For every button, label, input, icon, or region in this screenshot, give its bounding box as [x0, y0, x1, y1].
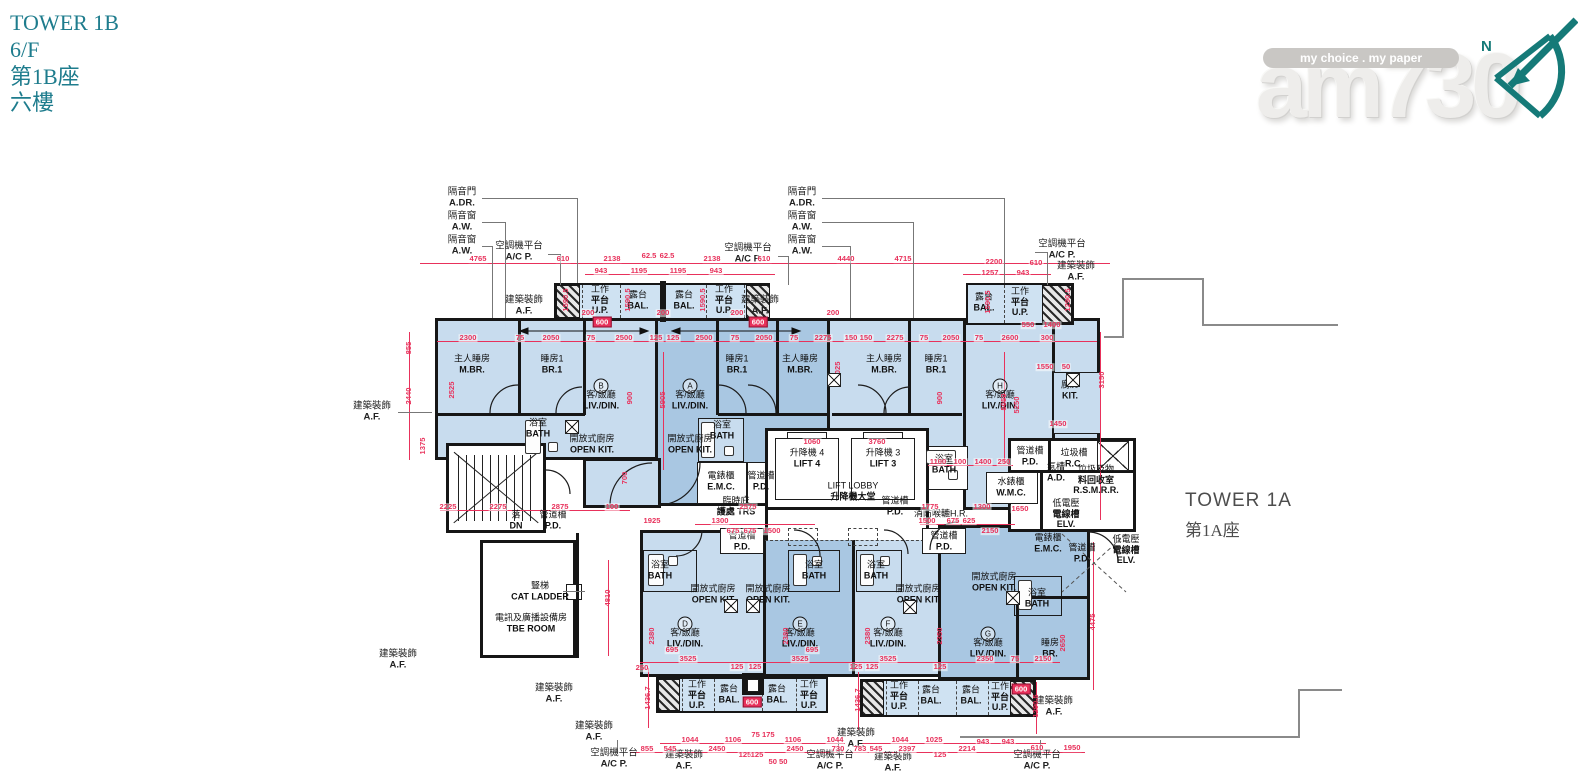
room-label: 露台BAL.: [961, 684, 982, 705]
dimension-label: 5050: [1000, 393, 1008, 412]
dimension-label: 75: [974, 334, 984, 342]
dimension-label: 1550: [1036, 363, 1055, 371]
dimension-label: 2138: [703, 255, 722, 263]
room-label: 工作平台U.P.: [991, 681, 1009, 713]
dimension-label: 75: [919, 334, 929, 342]
dimension-label: 100: [953, 458, 968, 466]
dimension-label: 2380: [782, 627, 790, 646]
dimension-label: 1375: [419, 437, 427, 456]
dimension-label: 1400: [1043, 321, 1062, 329]
callout-label: 建築裝飾A.F.: [505, 295, 543, 318]
dimension-label: 1590.5: [699, 287, 707, 312]
dimension-label: 2380: [864, 627, 872, 646]
dimension-label: 2225: [439, 503, 458, 511]
dimension-label: 75: [730, 334, 740, 342]
dimension-label: 1100: [929, 458, 947, 466]
dimension-label: 5905: [659, 391, 667, 410]
dimension-label: 125: [750, 751, 765, 759]
dimension-label: 545: [869, 745, 884, 753]
dimension-label: 3525: [679, 655, 698, 663]
room-label: 開放式廚房OPEN KIT.: [971, 571, 1016, 592]
dimension-label: 4475: [1089, 613, 1097, 632]
room-label: 露台BAL.: [921, 684, 942, 705]
dimension-label: 62.5: [659, 252, 676, 260]
dimension-label: 2875: [551, 503, 570, 511]
dimension-label: 1044: [681, 736, 700, 744]
dimension-label: 3150: [1098, 371, 1106, 390]
dimension-label: 150: [844, 334, 859, 342]
dimension-label: 2397: [898, 745, 917, 753]
room-label: 升降機 3LIFT 3: [866, 447, 901, 468]
dimension-label: 625: [962, 517, 977, 525]
room-label: 水錶櫃W.M.C.: [996, 476, 1026, 497]
dimension-badge: 600: [749, 317, 768, 328]
dimension-label: 1650: [1011, 505, 1030, 513]
floor-plan: 主人睡房M.BR.睡房1BR.1B客/飯廳LIV./DIN.浴室BATH開放式廚…: [0, 0, 1582, 779]
dimension-label: 2200: [985, 258, 1004, 266]
dimension-label: 1500: [763, 527, 782, 535]
dimension-label: 2440: [405, 387, 413, 406]
dimension-label: 125: [666, 334, 681, 342]
dimension-label: 75: [515, 334, 525, 342]
dimension-label: 250: [635, 664, 650, 672]
dimension-label: 2275: [814, 334, 833, 342]
dimension-label: 2214: [958, 745, 977, 753]
dimension-label: 783: [853, 745, 868, 753]
dimension-label: 2275: [489, 503, 508, 511]
dimension-label: 100: [605, 503, 620, 511]
window-box: [827, 373, 841, 387]
room-label: 主人睡房M.BR.: [866, 353, 902, 374]
room-label: 氣槽A.D.: [1047, 461, 1065, 482]
dimension-label: 2350: [976, 655, 995, 663]
dimension-label: 943: [594, 267, 609, 275]
dimension-label: 2500: [615, 334, 634, 342]
dimension-label: 125: [933, 751, 948, 759]
dimension-label: 125: [933, 663, 948, 671]
callout-label: 建築裝飾A.F.: [874, 752, 912, 775]
room-label: 浴室BATH: [802, 559, 826, 580]
callout-label: 隔音窗A.W.: [448, 211, 477, 234]
callout-label: 建築裝飾A.F.: [353, 401, 391, 424]
dimension-label: 2450: [708, 745, 727, 753]
dimension-label: 2138: [603, 255, 622, 263]
dimension-label: 200: [656, 309, 671, 317]
window-box: [565, 420, 579, 434]
dimension-label: 1450: [1049, 420, 1068, 428]
dimension-label: 1025: [925, 736, 944, 744]
room-label: 電錶櫃E.M.C.: [707, 470, 735, 491]
dimension-label: 1290.5: [1032, 693, 1040, 718]
room-label: 露台BAL.: [719, 683, 740, 704]
dimension-label: 2525: [448, 381, 456, 400]
room-label: 睡房1BR.1: [725, 353, 748, 374]
dimension-label: 2500: [695, 334, 714, 342]
page: TOWER 1B 6/F 第1B座 六樓 am730 my choice . m…: [0, 0, 1582, 779]
room-label: 工作平台U.P.: [890, 680, 908, 712]
callout-label: 空調機平台A/C P.: [590, 748, 638, 771]
dimension-label: 75 175: [750, 731, 775, 739]
dimension-label: 75: [1010, 655, 1020, 663]
dimension-label: 900: [626, 391, 634, 406]
callout-label: 建築裝飾A.F.: [1035, 696, 1073, 719]
callout-label: 建築裝飾A.F.: [379, 649, 417, 672]
room-label: 垃圾及物料回收室R.S.M.R.R.: [1073, 464, 1119, 496]
room-label: 低電壓電線槽ELV.: [1052, 498, 1079, 530]
dimension-label: 2380: [648, 627, 656, 646]
dimension-label: 200: [730, 309, 745, 317]
dimension-label: 75: [586, 334, 596, 342]
dimension-label: 3760: [868, 438, 887, 446]
room-label: 浴室BATH: [864, 559, 888, 580]
room-label: 管道槽P.D.: [539, 509, 566, 530]
dimension-badge: 600: [1012, 684, 1031, 695]
room-label: 浴室BATH: [526, 417, 550, 438]
callout-label: 建築裝飾A.F.: [575, 721, 613, 744]
dimension-label: 1044: [826, 736, 845, 744]
room-label: 落DN: [510, 509, 523, 530]
room-label: 客/飯廳LIV./DIN.: [583, 389, 619, 410]
dimension-label: 675: [946, 517, 961, 525]
room-label: 電訊及廣播設備房TBE ROOM: [495, 612, 567, 633]
dimension-label: 4440: [837, 255, 856, 263]
room-label: 管道槽P.D.: [747, 470, 774, 491]
dimension-label: 250: [997, 458, 1012, 466]
dimension-badge: 600: [743, 697, 762, 708]
dimension-label: 3525: [791, 655, 810, 663]
dimension-label: 125: [849, 663, 864, 671]
callout-label: 空調機平台A/C P.: [806, 750, 854, 773]
window-box: [746, 599, 760, 613]
dimension-label: 943: [1001, 738, 1016, 746]
callout-label: 建築裝飾A.F.: [741, 295, 779, 318]
dimension-label: 730: [831, 745, 846, 753]
dimension-label: 150: [859, 334, 874, 342]
dimension-label: 2300: [459, 334, 478, 342]
dimension-label: 2350: [936, 627, 944, 646]
dimension-label: 675: [743, 527, 758, 535]
dimension-label: 5250: [1013, 396, 1021, 415]
dimension-label: 2450: [786, 745, 805, 753]
dimension-label: 125: [865, 663, 880, 671]
dimension-label: 1500: [918, 517, 937, 525]
dimension-label: 1106: [724, 736, 742, 744]
dimension-label: 4765: [469, 255, 488, 263]
dimension-label: 2050: [542, 334, 561, 342]
dimension-label: 75: [789, 334, 799, 342]
dimension-label: 1400: [974, 458, 993, 466]
dimension-label: 200: [826, 309, 841, 317]
dimension-label: 1257: [981, 269, 1000, 277]
room-label: 工作平台U.P.: [688, 679, 706, 711]
room-label: 開放式廚房OPEN KIT.: [667, 433, 712, 454]
dimension-label: 1106: [784, 736, 802, 744]
dimension-label: 2150: [981, 527, 1000, 535]
dimension-label: 943: [1016, 269, 1031, 277]
dimension-label: 2150: [1034, 655, 1053, 663]
dimension-label: 2050: [755, 334, 774, 342]
dimension-label: 1195: [669, 267, 687, 275]
room-label: 管道槽P.D.: [1068, 542, 1095, 563]
room-label: 工作平台U.P.: [800, 679, 818, 711]
dimension-label: 4810: [604, 589, 612, 608]
dimension-label: 62.5: [641, 252, 658, 260]
dimension-label: 1060: [803, 438, 822, 446]
callout-label: 隔音窗A.W.: [788, 211, 817, 234]
room-label: 低電壓電線槽ELV.: [1112, 534, 1139, 566]
dimension-label: 610: [1029, 259, 1044, 267]
callout-label: 隔音窗A.W.: [788, 235, 817, 258]
dimension-badge: 600: [593, 317, 612, 328]
room-label: 升降機 4LIFT 4: [790, 447, 825, 468]
dimension-label: 1300: [973, 503, 992, 511]
dimension-label: 610: [556, 255, 571, 263]
dimension-label: 2650: [1059, 634, 1067, 653]
dimension-label: 1290.5: [1064, 287, 1072, 312]
dimension-label: 125: [730, 663, 745, 671]
dimension-label: 1195: [630, 267, 648, 275]
window-box: [724, 599, 738, 613]
dimension-label: 700: [621, 471, 629, 486]
window-box: [903, 600, 917, 614]
dimension-label: 610: [757, 255, 772, 263]
room-label: 工作平台U.P.: [1011, 286, 1029, 318]
dimension-label: 1590.5: [562, 287, 570, 312]
dimension-label: 550: [1021, 321, 1036, 329]
room-label: 浴室BATH: [648, 559, 672, 580]
room-label: 管道槽P.D.: [1016, 445, 1043, 466]
room-label: 露台BAL.: [674, 289, 695, 310]
dimension-label: 1590.5: [624, 287, 632, 312]
dimension-label: 675: [726, 527, 741, 535]
dimension-label: 943: [709, 267, 724, 275]
room-label: 浴室BATH: [1025, 587, 1049, 608]
callout-label: 隔音門A.DR.: [788, 187, 817, 210]
dimension-label: 545: [663, 745, 678, 753]
dimension-label: 1950: [1063, 744, 1082, 752]
callout-label: 空調機平台A/C P.: [1038, 239, 1086, 262]
dimension-label: 1436.7: [644, 685, 652, 710]
dimension-label: 50: [1061, 363, 1071, 371]
dimension-label: 300: [1040, 334, 1055, 342]
callout-label: 空調機平台A/C P.: [1013, 750, 1061, 773]
dimension-label: 1300: [711, 517, 730, 525]
room-label: LIFT LOBBY升降機大堂: [828, 480, 879, 501]
window-box: [1006, 591, 1020, 605]
room-label: 管道槽P.D.: [930, 530, 957, 551]
room-label: 客/飯廳LIV./DIN.: [672, 389, 708, 410]
dimension-label: 4715: [894, 255, 913, 263]
dimension-label: 125: [748, 663, 763, 671]
dimension-label: 695: [805, 646, 820, 654]
dimension-label: 2275: [886, 334, 905, 342]
room-label: 睡房1BR.1: [540, 353, 563, 374]
room-label: 開放式廚房OPEN KIT.: [569, 433, 614, 454]
room-label: 睡房1BR.1: [924, 353, 947, 374]
dimension-label: 2575: [739, 503, 758, 511]
dimension-label: 2050: [942, 334, 961, 342]
dimension-label: 3525: [879, 655, 898, 663]
callout-label: 隔音門A.DR.: [448, 187, 477, 210]
dimension-label: 1590.5: [984, 289, 992, 314]
callout-label: 建築裝飾A.F.: [1057, 261, 1095, 284]
dimension-label: 610: [1030, 744, 1045, 752]
callout-label: 建築裝飾A.F.: [535, 683, 573, 706]
callout-label: 空調機平台A/C P.: [495, 241, 543, 264]
room-label: 電錶櫃E.M.C.: [1034, 532, 1062, 553]
dimension-label: 2600: [1001, 334, 1020, 342]
dimension-label: 1044: [891, 736, 910, 744]
room-label: 主人睡房M.BR.: [454, 353, 490, 374]
dimension-label: 1925: [643, 517, 662, 525]
dimension-label: 50 50: [767, 758, 788, 766]
dimension-label: 1436.7: [854, 687, 862, 712]
dimension-label: 695: [665, 646, 680, 654]
window-box: [1066, 373, 1080, 387]
room-label: 主人睡房M.BR.: [782, 353, 818, 374]
dimension-label: 855: [405, 341, 413, 356]
room-label: 豎梯CAT LADDER: [511, 580, 569, 601]
dimension-label: 125: [649, 334, 664, 342]
dimension-label: 900: [936, 391, 944, 406]
room-label: 露台BAL.: [767, 683, 788, 704]
room-label: 浴室BATH: [710, 419, 734, 440]
dimension-label: 943: [976, 738, 991, 746]
room-label: 管道槽P.D.: [881, 495, 908, 516]
dimension-label: 1775: [921, 503, 940, 511]
room-label: 客/飯廳LIV./DIN.: [870, 627, 906, 648]
dimension-label: 855: [640, 745, 655, 753]
